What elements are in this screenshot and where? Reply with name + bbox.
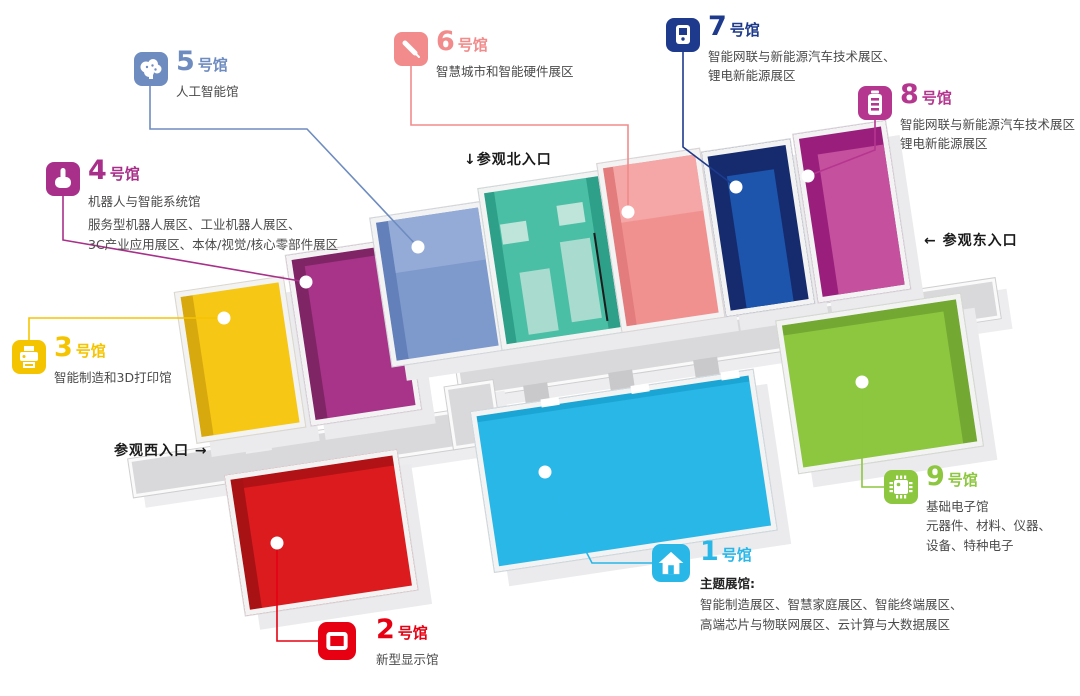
hall-1-desc: 智能制造展区、智慧家庭展区、智能终端展区、 (700, 595, 963, 614)
printer-icon (12, 340, 46, 374)
hall-1-leader-line (545, 472, 652, 563)
hall-4-label: 4号馆 机器人与智能系统馆 服务型机器人展区、工业机器人展区、 3C产业应用展区… (88, 157, 338, 254)
hall-2-title: 2号馆 (376, 616, 439, 643)
hall-2-desc: 新型显示馆 (376, 650, 439, 669)
hall-9-desc: 基础电子馆 (926, 497, 1051, 516)
hall-5-label: 5号馆 人工智能馆 (176, 48, 239, 101)
charger-icon (666, 18, 700, 52)
hall-3-label: 3号馆 智能制造和3D打印馆 (54, 334, 172, 387)
hall-3-anchor-dot (218, 312, 231, 325)
hall-1-title: 1号馆 (700, 538, 963, 565)
hall-6-leader-line (411, 66, 628, 212)
hall-6-title: 6号馆 (436, 28, 574, 55)
hall-8-anchor-dot (802, 170, 815, 183)
north-entrance-label: ↓参观北入口 (464, 149, 552, 169)
hall-5-title: 5号馆 (176, 48, 239, 75)
hall-2-anchor-dot (271, 537, 284, 550)
hall-4-subtitle: 机器人与智能系统馆 (88, 192, 338, 211)
hall-7-label: 7号馆 智能网联与新能源汽车技术展区、 锂电新能源展区 (708, 13, 896, 86)
hall-8-desc2: 锂电新能源展区 (900, 134, 1075, 153)
hall-5-anchor-dot (412, 241, 425, 254)
hall-9-desc3: 设备、特种电子 (926, 536, 1051, 555)
brain-icon (134, 52, 168, 86)
hall-6-label: 6号馆 智慧城市和智能硬件展区 (436, 28, 574, 81)
hall-9-label: 9号馆 基础电子馆 元器件、材料、仪器、 设备、特种电子 (926, 463, 1051, 555)
hall-1-anchor-dot (539, 466, 552, 479)
chip-icon (884, 470, 918, 504)
hall-1-label: 1号馆 主题展馆: 智能制造展区、智慧家庭展区、智能终端展区、 高端芯片与物联网… (700, 538, 963, 634)
hall-5-desc: 人工智能馆 (176, 82, 239, 101)
hall-6-anchor-dot (622, 206, 635, 219)
pen-icon (394, 32, 428, 66)
hall-8-title: 8号馆 (900, 81, 1075, 108)
hall-8-desc: 智能网联与新能源汽车技术展区 (900, 115, 1075, 134)
east-entrance-label: ← 参观东入口 (924, 230, 1018, 250)
battery-icon (858, 86, 892, 120)
hall-8-label: 8号馆 智能网联与新能源汽车技术展区 锂电新能源展区 (900, 81, 1075, 154)
hall-1-desc2: 高端芯片与物联网展区、云计算与大数据展区 (700, 615, 963, 634)
hall-7-desc: 智能网联与新能源汽车技术展区、 (708, 47, 896, 66)
hall-7-desc2: 锂电新能源展区 (708, 66, 896, 85)
hall-6-desc: 智慧城市和智能硬件展区 (436, 62, 574, 81)
hand-icon (46, 162, 80, 196)
hall-4-desc: 服务型机器人展区、工业机器人展区、 (88, 215, 338, 234)
hall-4-anchor-dot (300, 276, 313, 289)
hall-8-leader-line (808, 120, 875, 176)
hall-7-title: 7号馆 (708, 13, 896, 40)
hall-3-desc: 智能制造和3D打印馆 (54, 368, 172, 387)
hall-7-anchor-dot (730, 181, 743, 194)
hall-9-desc2: 元器件、材料、仪器、 (926, 516, 1051, 535)
hall-1-subtitle: 主题展馆: (700, 574, 963, 593)
hall-4-title: 4号馆 (88, 157, 338, 184)
hall-9-leader-line (862, 382, 884, 487)
display-icon (318, 622, 356, 660)
west-entrance-label: 参观西入口 → (114, 440, 208, 460)
home-icon (652, 544, 690, 582)
hall-2-leader-line (277, 543, 318, 641)
hall-9-title: 9号馆 (926, 463, 1051, 490)
hall-9-anchor-dot (856, 376, 869, 389)
hall-2-label: 2号馆 新型显示馆 (376, 616, 439, 669)
hall-4-desc2: 3C产业应用展区、本体/视觉/核心零部件展区 (88, 235, 338, 254)
hall-3-title: 3号馆 (54, 334, 172, 361)
